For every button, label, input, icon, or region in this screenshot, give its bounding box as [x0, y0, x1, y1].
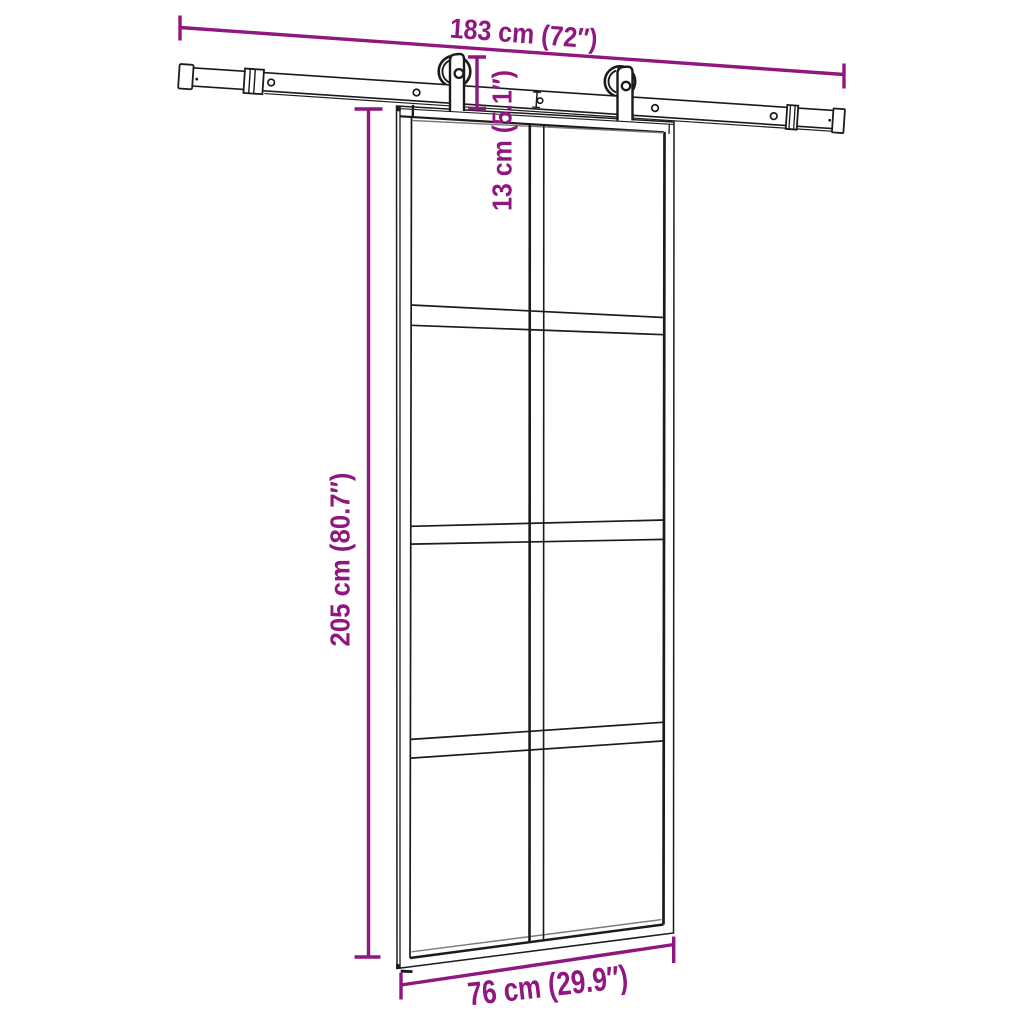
- svg-text:13 cm (5.1″): 13 cm (5.1″): [487, 70, 518, 211]
- svg-text:205 cm (80.7″): 205 cm (80.7″): [325, 473, 356, 647]
